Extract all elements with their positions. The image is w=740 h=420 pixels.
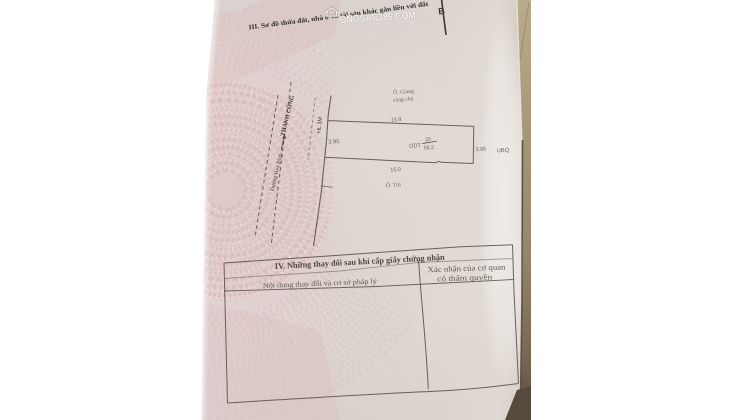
svg-text:15.0: 15.0 [390, 167, 401, 174]
svg-text:ODT: ODT [409, 143, 422, 150]
svg-text:15.9: 15.9 [391, 117, 402, 124]
svg-text:59.2: 59.2 [424, 145, 435, 152]
svg-text:3.95: 3.95 [475, 147, 486, 154]
svg-text:UBQ: UBQ [497, 148, 510, 155]
svg-text:3.95: 3.95 [328, 139, 340, 146]
